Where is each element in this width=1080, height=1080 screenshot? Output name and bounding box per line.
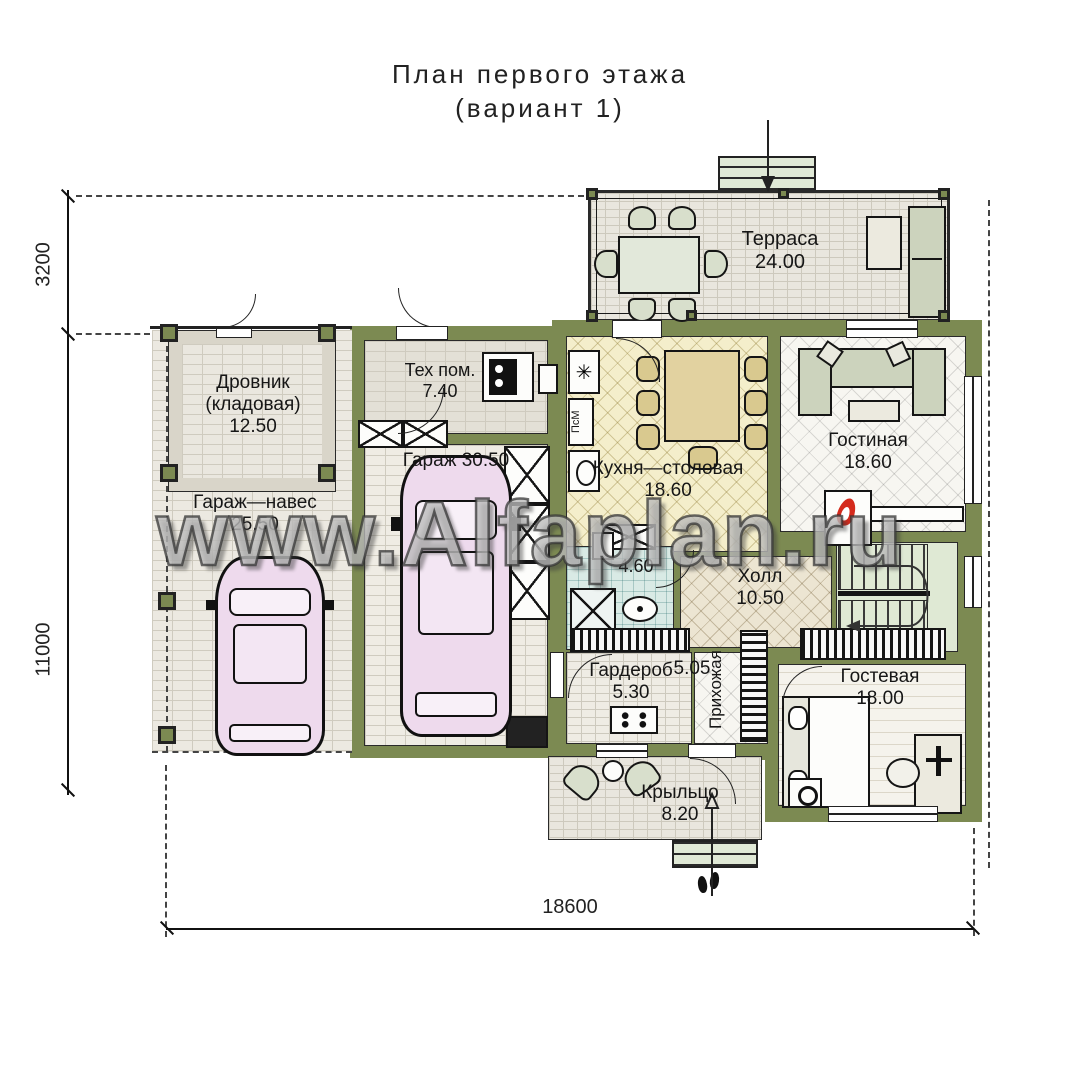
terrace-bench — [908, 206, 946, 318]
living-room-label: Гостиная 18.60 — [778, 430, 958, 474]
plan-title-line2: (вариант 1) — [0, 92, 1080, 126]
kitchen-chair — [744, 356, 768, 382]
guest-desk — [914, 734, 962, 814]
carport-post — [158, 592, 176, 610]
kitchen-chair — [636, 390, 660, 416]
garage-label: Гараж 30.50 — [366, 450, 546, 472]
kitchen-chair — [744, 390, 768, 416]
entry-name-label: Прихожая — [706, 636, 732, 744]
terrace-post — [938, 188, 950, 200]
wardrobe-rail — [570, 628, 690, 652]
kitchen-table — [664, 350, 740, 442]
woodshed-label: Дровник (кладовая) 12.50 — [168, 372, 338, 438]
guest-desk-chair — [886, 758, 920, 788]
carport-post — [158, 726, 176, 744]
floor-plan-canvas: План первого этажа (вариант 1) 3200 1100… — [0, 0, 1080, 1080]
boiler-accessory — [538, 364, 558, 394]
garage-shelf — [358, 420, 403, 448]
terrace-bench-divider — [912, 258, 942, 260]
dimension-18600: 18600 — [420, 896, 720, 919]
carport-post — [160, 324, 178, 342]
garage-equipment — [506, 716, 548, 748]
porch-label: Крыльцо 8.20 — [600, 782, 760, 826]
porch-table — [602, 760, 624, 782]
terrace-post — [586, 310, 598, 322]
guest-room-label: Гостевая 18.00 — [800, 666, 960, 710]
coffee-table — [848, 400, 900, 422]
terrace-chair — [628, 298, 656, 322]
carport-post — [160, 464, 178, 482]
dimension-line-left — [67, 190, 69, 795]
porch-window — [596, 744, 648, 758]
extension-line-bottom-left — [165, 765, 167, 937]
kitchen-terrace-door-opening — [612, 320, 662, 338]
terrace-chair — [594, 250, 618, 278]
guest-window — [828, 806, 938, 822]
extension-line-top — [76, 195, 584, 197]
extension-line-mid — [76, 333, 150, 335]
terrace-side-table — [866, 216, 902, 270]
carport-post — [318, 324, 336, 342]
entry-door-opening — [688, 744, 736, 758]
watermark: www.Alfaplan.ru — [70, 482, 990, 587]
terrace-post — [938, 310, 950, 322]
terrace-post — [778, 188, 789, 199]
garage-house-door-opening — [550, 652, 564, 698]
living-terrace-opening — [846, 320, 918, 338]
terrace-chair — [668, 206, 696, 230]
dimension-line-bottom — [166, 928, 974, 930]
dishwasher-label: ПсМ — [568, 398, 594, 446]
terrace-table — [618, 236, 700, 294]
toilet — [622, 596, 658, 622]
kitchen-chair — [636, 424, 660, 450]
plan-title: План первого этажа (вариант 1) — [0, 58, 1080, 126]
shoe-cabinet — [610, 706, 658, 734]
kitchen-chair — [744, 424, 768, 450]
tech-door-opening — [396, 326, 448, 340]
dimension-11000: 11000 — [33, 598, 56, 702]
living-sofa-arm — [912, 348, 946, 416]
tech-exterior-door-arc — [398, 288, 438, 328]
woodshed-door-opening — [216, 328, 252, 338]
woodshed-door-arc — [222, 294, 256, 328]
terrace-chair — [628, 206, 656, 230]
extension-line-bottom-right — [973, 828, 975, 936]
guest-nightstand — [788, 778, 822, 808]
terrace-entry-arrow — [758, 120, 778, 200]
terrace-post — [586, 188, 598, 200]
tech-room-label: Тех пом. 7.40 — [380, 360, 500, 401]
terrace-post — [686, 310, 697, 321]
plan-title-line1: План первого этажа — [0, 58, 1080, 92]
dimension-3200: 3200 — [33, 225, 56, 305]
carport-post — [318, 464, 336, 482]
fridge-icon: ✳ — [568, 350, 600, 394]
terrace-label: Терраса 24.00 — [690, 228, 870, 274]
entry-wardrobe — [740, 630, 768, 742]
